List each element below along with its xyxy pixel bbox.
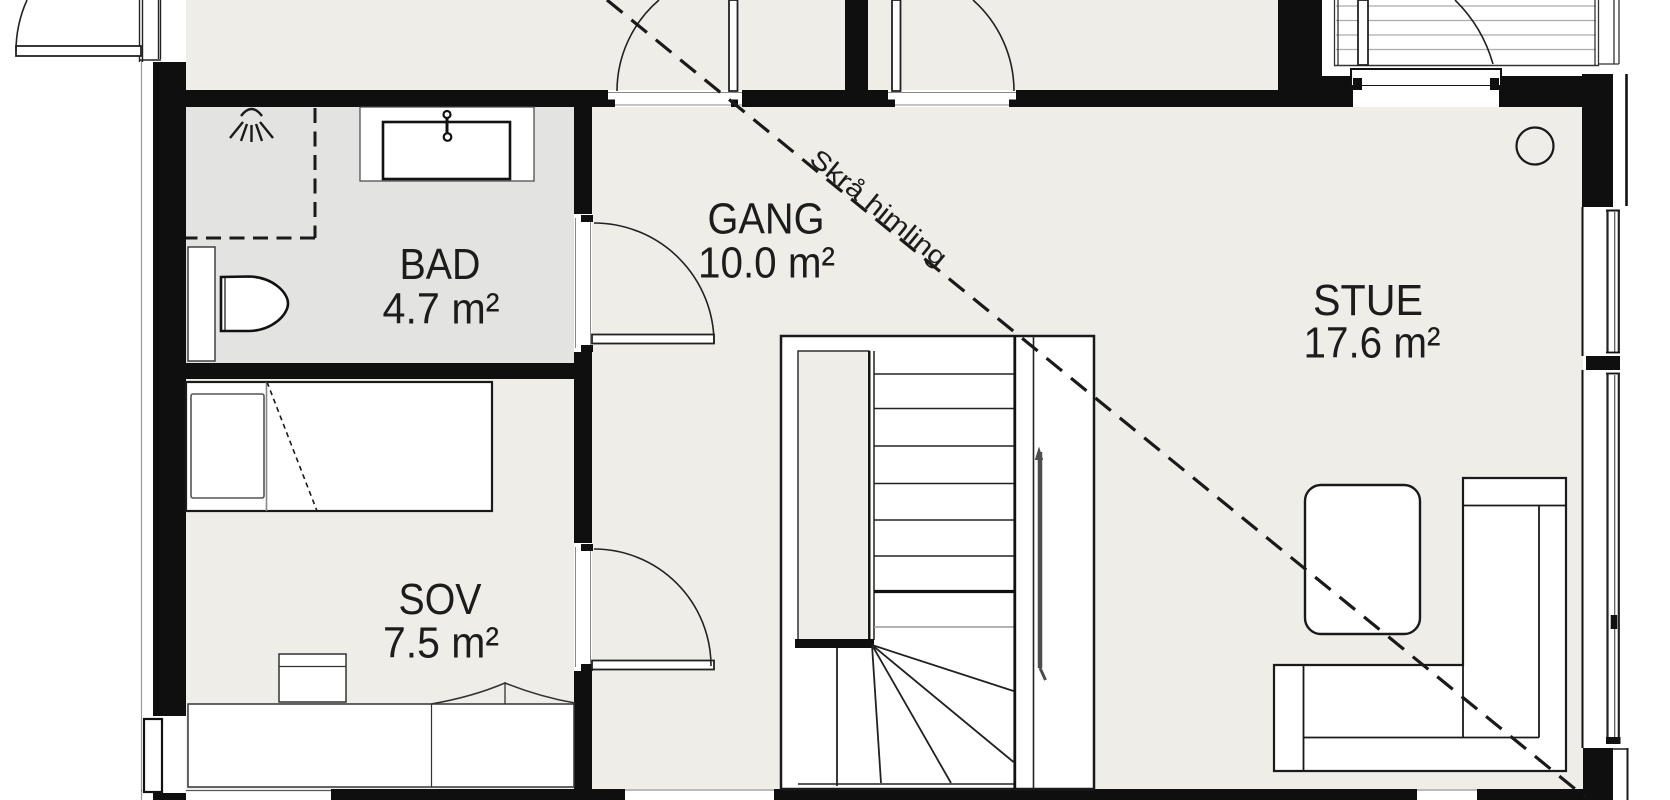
svg-text:SOV: SOV	[399, 575, 483, 624]
svg-text:10.0 m²: 10.0 m²	[698, 239, 835, 288]
svg-text:4.7 m²: 4.7 m²	[383, 285, 500, 334]
svg-text:GANG: GANG	[708, 195, 825, 244]
svg-text:7.5 m²: 7.5 m²	[383, 619, 499, 668]
svg-text:BAD: BAD	[400, 240, 481, 289]
svg-text:17.6 m²: 17.6 m²	[1304, 319, 1441, 368]
